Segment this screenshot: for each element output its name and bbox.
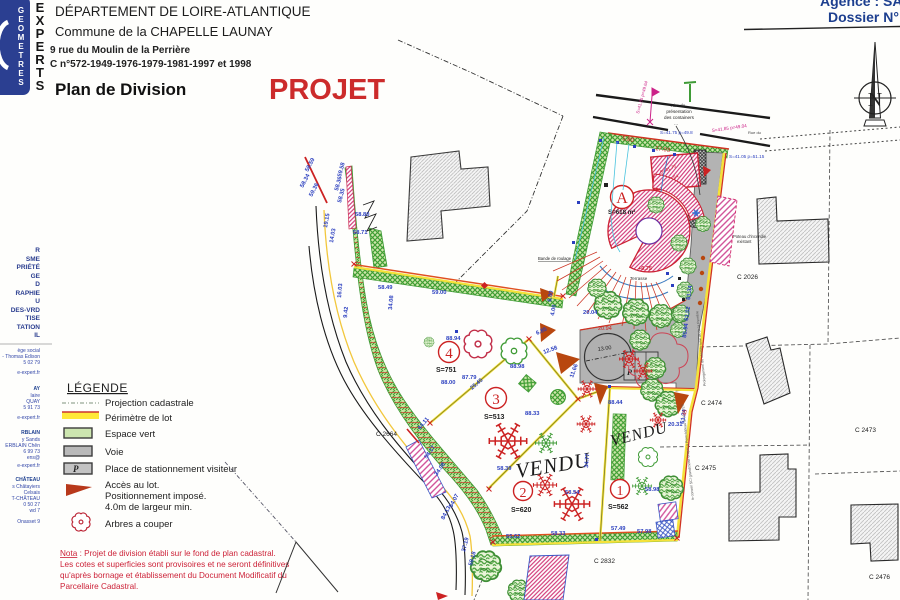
svg-text:E: E (18, 15, 24, 24)
svg-text:S=513: S=513 (484, 414, 505, 421)
svg-text:Périmètre de lot: Périmètre de lot (105, 413, 172, 424)
svg-text:88.33: 88.33 (525, 411, 540, 417)
svg-text:C 2832: C 2832 (594, 558, 615, 565)
svg-text:S: S (36, 78, 45, 93)
svg-text:RBLAIN: RBLAIN (21, 430, 40, 436)
svg-text:58.39: 58.39 (497, 466, 512, 472)
svg-text:45: 45 (682, 409, 689, 416)
svg-text:88.94: 88.94 (446, 336, 461, 342)
svg-text:C 2476: C 2476 (869, 574, 890, 581)
svg-text:E: E (18, 69, 24, 78)
svg-text:CHÂTEAU: CHÂTEAU (16, 476, 41, 483)
svg-text:G: G (18, 6, 24, 15)
svg-text:wd 7: wd 7 (29, 508, 40, 514)
svg-text:R: R (18, 60, 24, 69)
svg-text:58.71: 58.71 (353, 230, 368, 236)
svg-text:58.49: 58.49 (378, 285, 393, 291)
svg-text:57.49: 57.49 (611, 526, 626, 532)
svg-text:GE: GE (31, 273, 41, 280)
svg-text:C 2474: C 2474 (701, 400, 722, 407)
svg-text:AY: AY (34, 386, 41, 392)
svg-text:R: R (35, 247, 40, 254)
svg-text:+0.75: +0.75 (638, 266, 652, 272)
svg-text:C 2473: C 2473 (855, 427, 876, 434)
svg-text:5 02 79: 5 02 79 (23, 360, 40, 366)
svg-text:4.0m de largeur min.: 4.0m de largeur min. (105, 502, 192, 513)
svg-text:qu'après bornage et établissem: qu'après bornage et établissement du Doc… (60, 571, 287, 580)
svg-text:88.98: 88.98 (510, 364, 525, 370)
svg-text:9 rue du Moulin de la Perrière: 9 rue du Moulin de la Perrière (50, 45, 190, 56)
svg-text:N: N (868, 89, 882, 111)
svg-text:ens@: ens@ (27, 455, 40, 461)
svg-text:58.80: 58.80 (355, 212, 370, 218)
svg-text:C 2664: C 2664 (376, 431, 397, 438)
svg-text:Agence : SAVE: Agence : SAVE (820, 0, 900, 9)
svg-text:87.79: 87.79 (462, 375, 477, 381)
svg-text:D: D (35, 281, 40, 288)
svg-text:S=41.05 p=51.15: S=41.05 p=51.15 (729, 154, 765, 159)
svg-text:S=751: S=751 (436, 367, 457, 374)
svg-text:TISE: TISE (26, 315, 41, 322)
svg-text:88.44: 88.44 (608, 400, 623, 406)
svg-text:présentation: présentation (666, 109, 692, 114)
svg-text:Parcellaire Cadastral.: Parcellaire Cadastral. (60, 582, 138, 591)
svg-text:Onasset 9: Onasset 9 (17, 519, 40, 525)
svg-text:Dossier N° : S: Dossier N° : S (828, 9, 900, 25)
svg-text:34.77: 34.77 (584, 453, 591, 468)
svg-text:S: S (18, 78, 24, 87)
svg-text:e-expert.fr: e-expert.fr (17, 463, 40, 469)
svg-text:E: E (18, 42, 24, 51)
svg-text:O: O (18, 24, 24, 33)
svg-text:Plan de Division: Plan de Division (55, 80, 186, 99)
svg-text:58.98: 58.98 (645, 487, 660, 493)
svg-text:88.00: 88.00 (441, 380, 456, 386)
svg-text:Accès au lot.: Accès au lot. (105, 480, 159, 491)
svg-text:Espace vert: Espace vert (105, 429, 156, 440)
svg-text:53.54: 53.54 (565, 490, 580, 496)
svg-text:DÉPARTEMENT DE LOIRE-ATLANTIQU: DÉPARTEMENT DE LOIRE-ATLANTIQUE (55, 4, 311, 19)
svg-text:des containers: des containers (664, 115, 695, 120)
svg-text:C 2475: C 2475 (695, 465, 716, 472)
svg-text:TATION: TATION (17, 324, 41, 331)
svg-text:U: U (35, 298, 40, 305)
svg-text:Rue du: Rue du (748, 130, 761, 135)
svg-text:1: 1 (617, 484, 624, 499)
svg-text:C 2026: C 2026 (737, 274, 758, 281)
svg-text:Aire de: Aire de (671, 103, 686, 108)
svg-text:3: 3 (492, 392, 500, 408)
svg-text:e-expert.fr: e-expert.fr (17, 370, 40, 376)
svg-text:RAPHIE: RAPHIE (15, 290, 40, 297)
svg-text:S=41.75 p=49.8: S=41.75 p=49.8 (660, 130, 693, 135)
svg-text:A: A (616, 190, 628, 207)
svg-text:S=618 m²: S=618 m² (608, 209, 635, 216)
svg-text:T-CHÂTEAU: T-CHÂTEAU (12, 495, 41, 502)
svg-text:58.33: 58.33 (551, 531, 566, 537)
svg-text:Bande de roulage: Bande de roulage (538, 256, 572, 261)
svg-text:DES-VRD: DES-VRD (11, 307, 41, 314)
svg-text:55.62: 55.62 (506, 534, 521, 540)
svg-text:57.98: 57.98 (637, 529, 652, 535)
svg-text:P: P (73, 464, 79, 474)
svg-text:C n°572-1949-1976-1979-1981-19: C n°572-1949-1976-1979-1981-1997 et 1998 (50, 59, 252, 70)
svg-text:M: M (18, 33, 25, 42)
svg-text:4: 4 (445, 346, 453, 362)
svg-text:Nota : Projet de division étab: Nota : Projet de division établi sur le … (60, 549, 276, 558)
svg-text:existant: existant (737, 239, 752, 244)
svg-text:PRIÉTÉ: PRIÉTÉ (17, 262, 41, 271)
svg-text:Voie: Voie (105, 447, 124, 458)
svg-text:Terrasse: Terrasse (630, 276, 648, 281)
svg-text:IL: IL (34, 332, 40, 339)
svg-text:Les cotes et superficies sont: Les cotes et superficies sont provisoire… (60, 560, 289, 569)
svg-text:20.94: 20.94 (598, 326, 612, 332)
svg-text:9.42: 9.42 (343, 306, 350, 318)
svg-text:Positionnement imposé.: Positionnement imposé. (105, 491, 206, 502)
svg-text:59.00: 59.00 (432, 290, 447, 296)
svg-text:S=620: S=620 (511, 507, 532, 514)
svg-text:20.04: 20.04 (583, 310, 598, 316)
svg-text:PROJET: PROJET (269, 74, 385, 106)
svg-text:5 91 73: 5 91 73 (23, 405, 40, 411)
svg-text:T: T (19, 51, 24, 60)
svg-text:e-expert.fr: e-expert.fr (17, 415, 40, 421)
svg-text:SME: SME (26, 256, 41, 263)
svg-text:...: ... (674, 121, 678, 126)
svg-text:Projection cadastrale: Projection cadastrale (105, 398, 194, 409)
svg-text:LÉGENDE: LÉGENDE (67, 380, 128, 395)
svg-text:2: 2 (520, 486, 527, 501)
svg-text:Place de stationnement visiteu: Place de stationnement visiteur (105, 464, 237, 475)
svg-text:Commune de la CHAPELLE LAUNAY: Commune de la CHAPELLE LAUNAY (55, 24, 273, 39)
svg-text:Arbres a couper: Arbres a couper (105, 519, 173, 530)
svg-text:S=562: S=562 (608, 504, 629, 511)
